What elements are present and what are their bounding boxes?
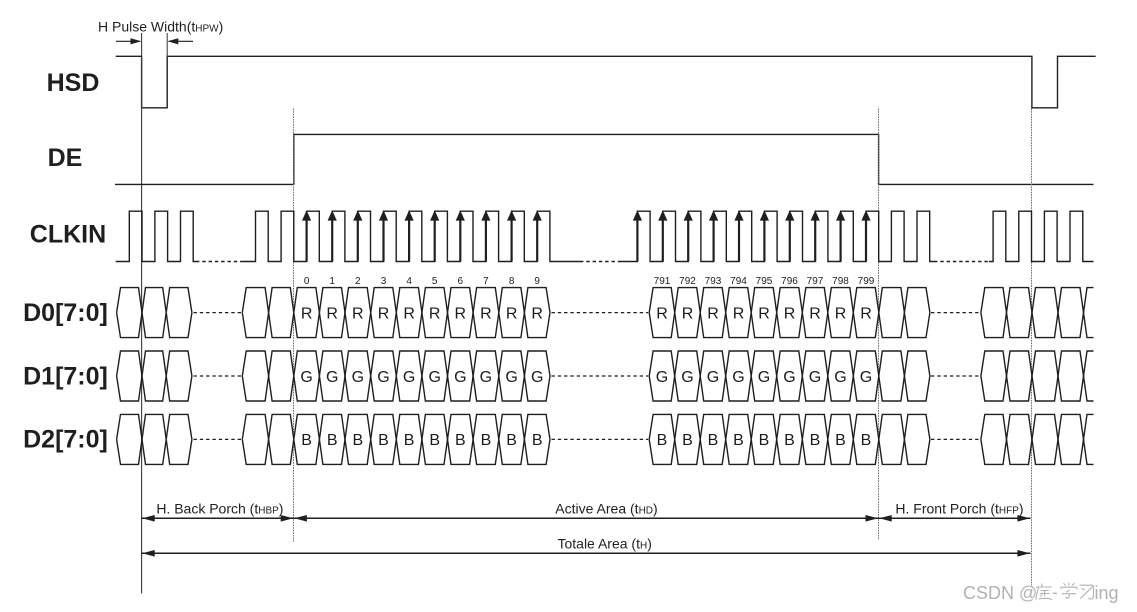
svg-text:B: B (455, 432, 466, 449)
svg-text:R: R (429, 305, 441, 322)
svg-text:G: G (707, 369, 719, 386)
svg-text:799: 799 (858, 276, 875, 287)
svg-text:G: G (403, 369, 415, 386)
svg-text:Totale Area (tH): Totale Area (tH) (557, 536, 651, 552)
svg-text:B: B (352, 432, 363, 449)
svg-text:CLKIN: CLKIN (30, 221, 106, 249)
svg-text:6: 6 (458, 276, 464, 287)
svg-text:R: R (506, 305, 518, 322)
svg-text:B: B (404, 432, 415, 449)
svg-text:G: G (352, 369, 364, 386)
svg-text:793: 793 (705, 276, 722, 287)
svg-text:G: G (300, 369, 312, 386)
svg-text:G: G (656, 369, 668, 386)
svg-text:R: R (378, 305, 390, 322)
svg-text:792: 792 (679, 276, 696, 287)
svg-text:G: G (326, 369, 338, 386)
svg-text:R: R (809, 305, 821, 322)
svg-text:G: G (531, 369, 543, 386)
svg-text:G: G (809, 369, 821, 386)
svg-text:B: B (861, 432, 872, 449)
svg-text:1: 1 (329, 276, 335, 287)
svg-text:4: 4 (406, 276, 412, 287)
svg-text:G: G (377, 369, 389, 386)
svg-text:B: B (378, 432, 389, 449)
svg-text:0: 0 (304, 276, 310, 287)
svg-text:G: G (681, 369, 693, 386)
svg-text:D1[7:0]: D1[7:0] (23, 362, 108, 390)
svg-text:R: R (707, 305, 719, 322)
svg-text:B: B (835, 432, 846, 449)
svg-text:B: B (784, 432, 795, 449)
svg-text:794: 794 (730, 276, 747, 287)
svg-text:B: B (759, 432, 770, 449)
svg-text:B: B (733, 432, 744, 449)
svg-text:G: G (505, 369, 517, 386)
svg-text:R: R (860, 305, 872, 322)
svg-text:R: R (733, 305, 745, 322)
svg-text:B: B (301, 432, 312, 449)
svg-text:R: R (403, 305, 415, 322)
svg-text:797: 797 (807, 276, 824, 287)
svg-text:G: G (783, 369, 795, 386)
svg-text:G: G (428, 369, 440, 386)
svg-text:B: B (682, 432, 693, 449)
svg-text:DE: DE (48, 144, 83, 172)
svg-text:R: R (656, 305, 668, 322)
svg-text:B: B (708, 432, 719, 449)
svg-text:B: B (429, 432, 440, 449)
svg-text:CSDN @: CSDN @ (963, 583, 1037, 603)
svg-text:8: 8 (509, 276, 515, 287)
svg-text:R: R (758, 305, 770, 322)
svg-text:D2[7:0]: D2[7:0] (23, 426, 108, 454)
svg-text:G: G (454, 369, 466, 386)
svg-text:R: R (480, 305, 492, 322)
svg-text:798: 798 (832, 276, 849, 287)
svg-text:R: R (835, 305, 847, 322)
svg-text:2: 2 (355, 276, 361, 287)
svg-text:B: B (481, 432, 492, 449)
svg-text:R: R (326, 305, 338, 322)
svg-text:G: G (758, 369, 770, 386)
svg-text:G: G (480, 369, 492, 386)
svg-text:3: 3 (381, 276, 387, 287)
svg-text:B: B (327, 432, 338, 449)
svg-text:796: 796 (781, 276, 798, 287)
svg-text:G: G (860, 369, 872, 386)
svg-text:R: R (531, 305, 543, 322)
svg-text:9: 9 (534, 276, 540, 287)
svg-text:ing: ing (1095, 583, 1119, 603)
svg-text:795: 795 (756, 276, 773, 287)
svg-text:R: R (352, 305, 364, 322)
svg-text:B: B (532, 432, 543, 449)
svg-text:HSD: HSD (47, 69, 100, 97)
svg-text:R: R (784, 305, 796, 322)
svg-text:R: R (301, 305, 313, 322)
svg-text:B: B (506, 432, 517, 449)
svg-text:G: G (732, 369, 744, 386)
svg-text:B: B (810, 432, 821, 449)
svg-text:7: 7 (483, 276, 489, 287)
svg-text:R: R (455, 305, 467, 322)
svg-text:G: G (834, 369, 846, 386)
svg-text:791: 791 (654, 276, 671, 287)
svg-text:D0[7:0]: D0[7:0] (23, 299, 108, 327)
svg-text:B: B (657, 432, 668, 449)
svg-text:R: R (682, 305, 694, 322)
svg-text:5: 5 (432, 276, 438, 287)
